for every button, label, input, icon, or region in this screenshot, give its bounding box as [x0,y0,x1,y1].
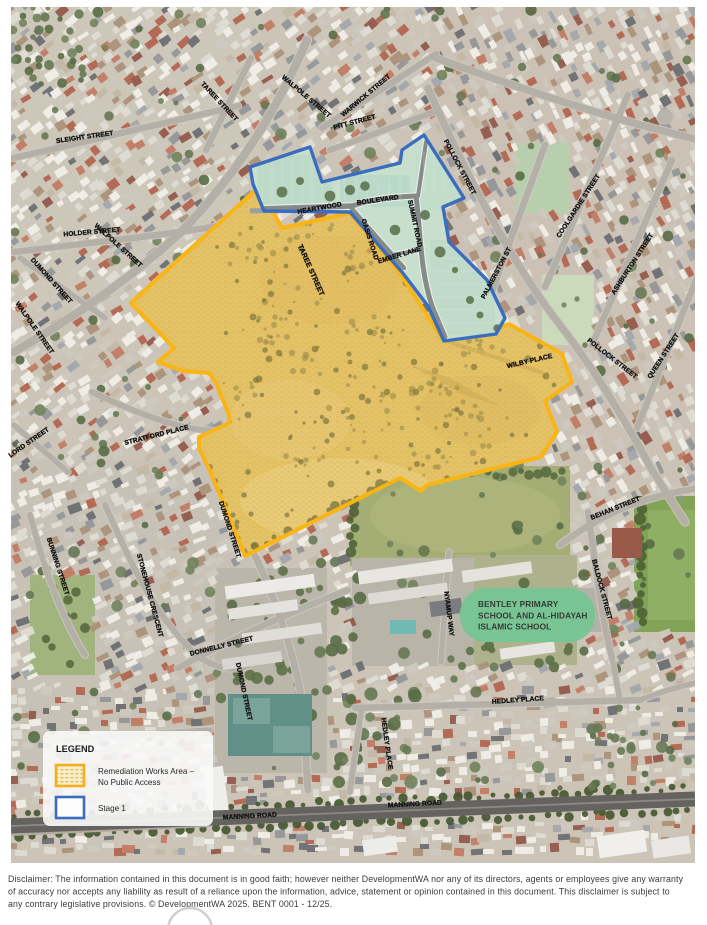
svg-text:of accuracy nor accepts any li: of accuracy nor accepts any liability as… [8,887,670,897]
svg-text:LEGEND: LEGEND [56,744,95,754]
svg-text:any contrary legislative provi: any contrary legislative provisions. © D… [8,899,332,909]
svg-text:SCHOOL AND AL-HIDAYAH: SCHOOL AND AL-HIDAYAH [478,610,588,620]
svg-text:No Public Access: No Public Access [98,778,161,787]
svg-text:Stage 1: Stage 1 [98,804,126,813]
svg-text:Disclaimer: The information co: Disclaimer: The information contained in… [8,874,684,884]
svg-text:BENTLEY PRIMARY: BENTLEY PRIMARY [478,599,559,609]
svg-text:Remediation Works Area –: Remediation Works Area – [98,767,195,776]
svg-text:ISLAMIC SCHOOL: ISLAMIC SCHOOL [478,622,551,632]
